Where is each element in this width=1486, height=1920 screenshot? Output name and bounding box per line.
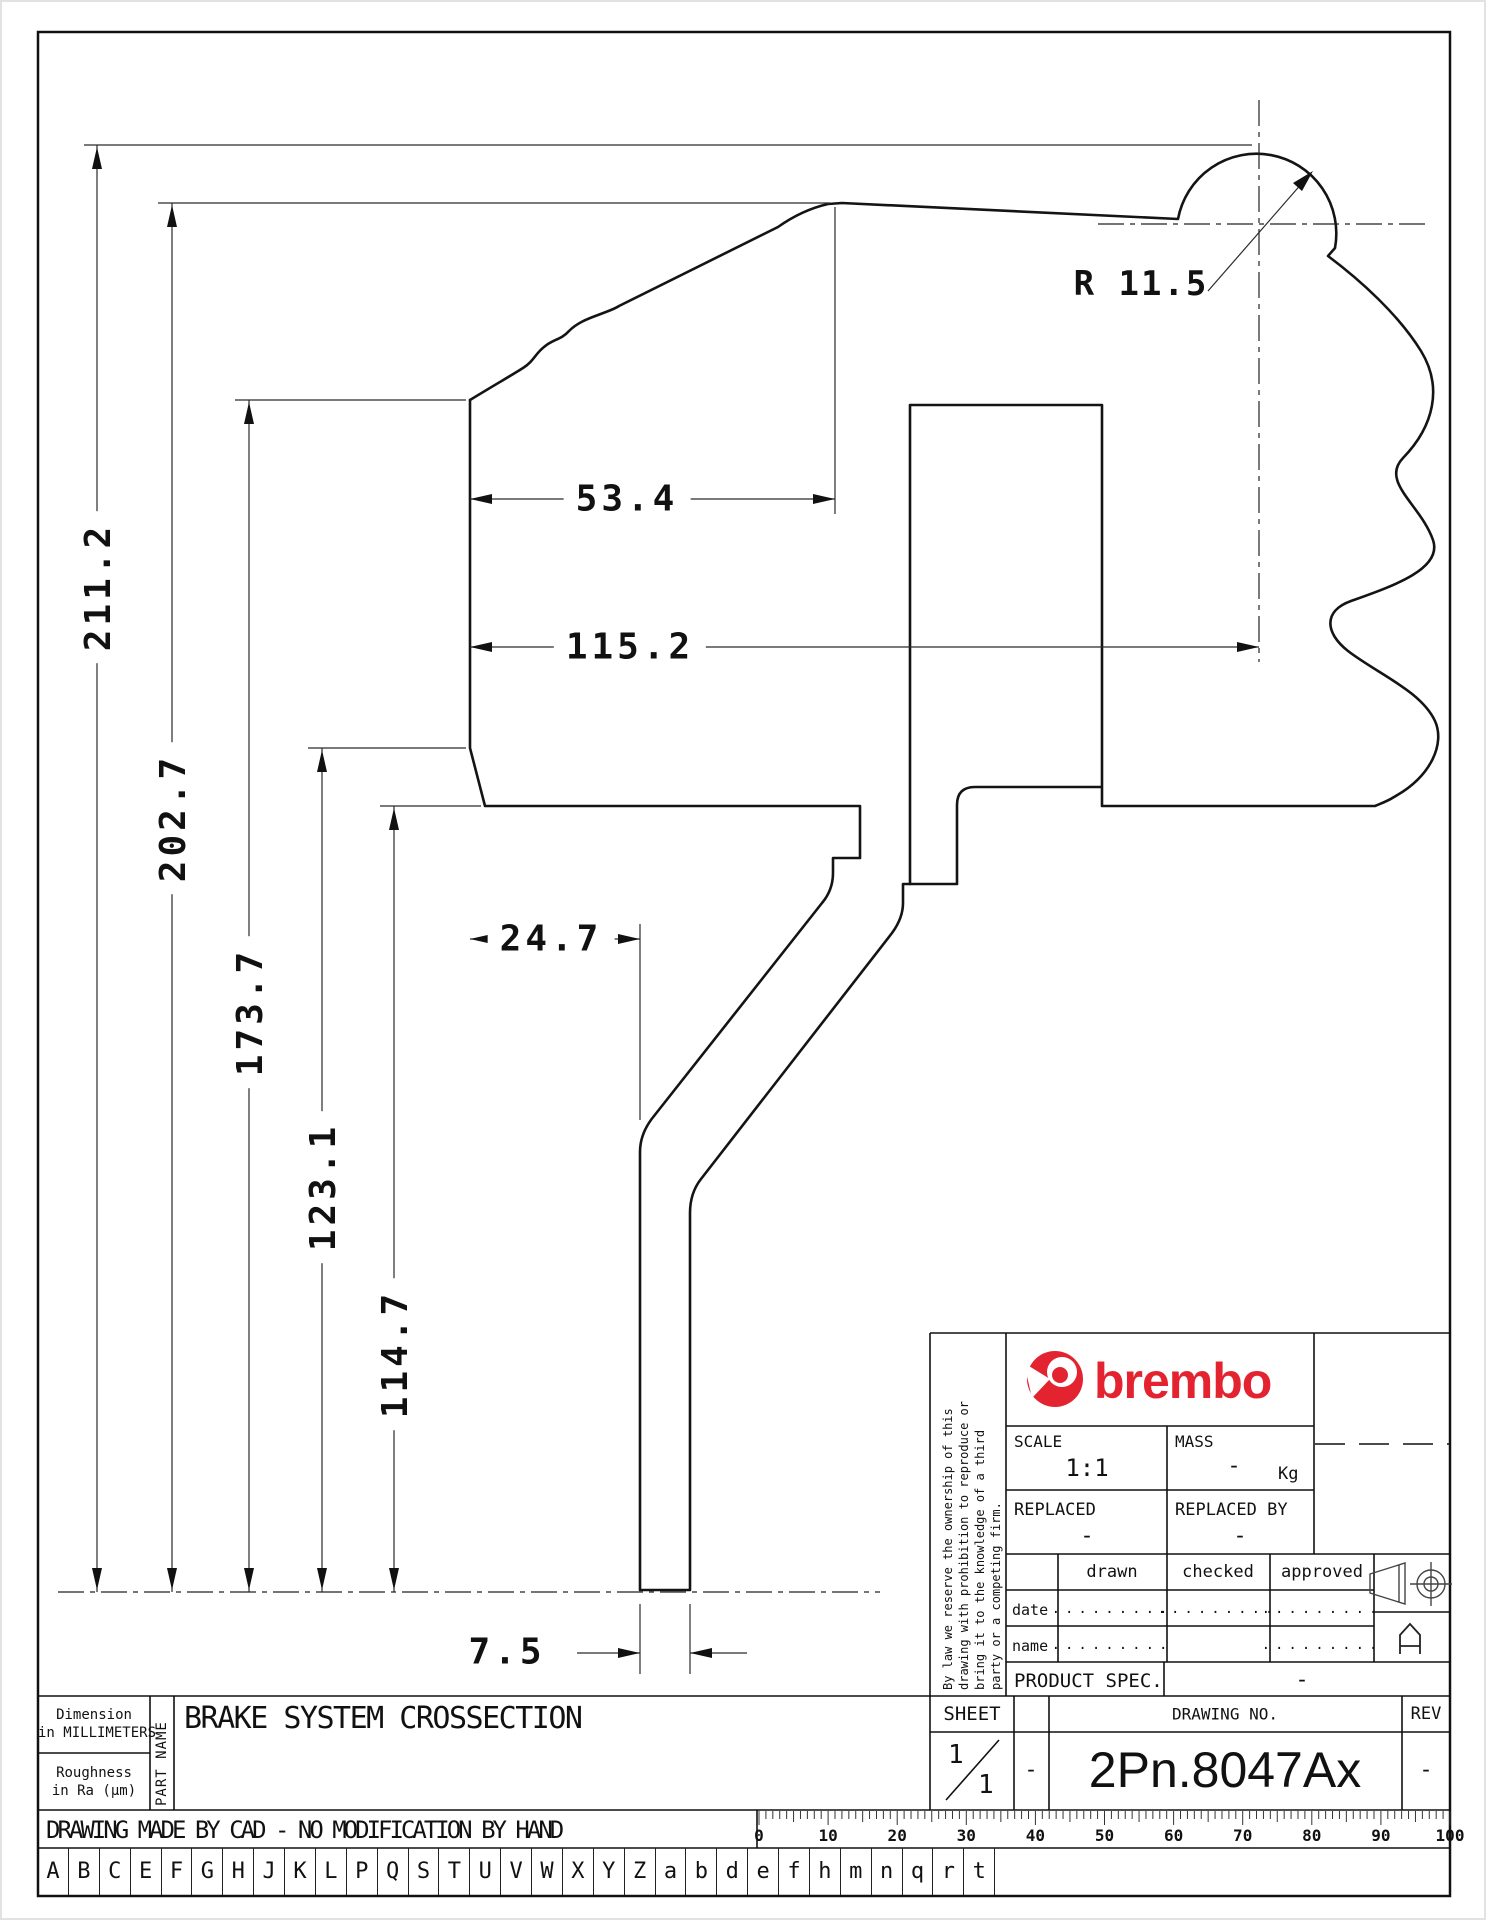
revision-letter-cell: L	[316, 1848, 347, 1895]
scale-value: 1:1	[1065, 1454, 1108, 1482]
dimension-units-note: Dimension in MILLIMETERS	[38, 1706, 150, 1742]
revision-letter-cell: m	[841, 1848, 872, 1895]
mass-value: -	[1227, 1454, 1240, 1479]
date-drawn-dots: .........	[1052, 1601, 1173, 1617]
mass-label: MASS	[1175, 1432, 1214, 1451]
revision-letter-strip: ABCEFGHJKLPQSTUVWXYZabdefhmnqrt	[38, 1848, 995, 1895]
disclaimer-line: party or a competing firm.	[988, 1338, 1004, 1690]
dim-label-173-7: 173.7	[228, 936, 273, 1088]
ruler-number: 40	[1026, 1826, 1045, 1845]
scale-ruler-ticks	[759, 1811, 1450, 1825]
dim-label-114-7: 114.7	[373, 1278, 418, 1430]
approved-label: approved	[1281, 1562, 1363, 1582]
dim-label-115-2: 115.2	[554, 627, 706, 668]
sheet-total: 1	[978, 1770, 994, 1800]
revision-letter-cell: Z	[625, 1848, 656, 1895]
revision-letter-cell: A	[38, 1848, 69, 1895]
revision-letter-cell: P	[347, 1848, 378, 1895]
product-spec-label: PRODUCT SPEC.	[1014, 1670, 1163, 1692]
ruler-number: 20	[888, 1826, 907, 1845]
sheet-number: 1	[948, 1740, 964, 1770]
replaced-label: REPLACED	[1014, 1500, 1096, 1520]
revision-letter-cell: Y	[594, 1848, 625, 1895]
revision-letter-cell: S	[409, 1848, 440, 1895]
revision-letter-cell: C	[100, 1848, 131, 1895]
name-label: name	[1012, 1637, 1048, 1655]
ruler-number: 70	[1233, 1826, 1252, 1845]
dim-label-53-4: 53.4	[564, 479, 691, 520]
revision-letter-cell: b	[686, 1848, 717, 1895]
revision-letter-cell: V	[501, 1848, 532, 1895]
ruler-number: 100	[1436, 1826, 1465, 1845]
brembo-logo-text: brembo	[1094, 1352, 1271, 1410]
revision-letter-cell: T	[439, 1848, 470, 1895]
revision-letter-cell: H	[223, 1848, 254, 1895]
revision-letter-cell: r	[933, 1848, 964, 1895]
revision-letter-cell: e	[748, 1848, 779, 1895]
name-approved-dots: .........	[1262, 1637, 1383, 1653]
revision-letter-cell: f	[779, 1848, 810, 1895]
product-spec-value: -	[1295, 1668, 1308, 1693]
sheet-sep-value: -	[1024, 1758, 1037, 1783]
drawn-label: drawn	[1086, 1562, 1137, 1582]
dim-label-7-5: 7.5	[456, 1632, 557, 1673]
name-drawn-dots: .........	[1052, 1637, 1173, 1653]
scale-ruler-labels: 0102030405060708090100	[759, 1826, 1450, 1844]
view-a-marker-icon	[1400, 1624, 1420, 1654]
revision-letter-cell: W	[532, 1848, 563, 1895]
dim-label-211-2: 211.2	[76, 511, 121, 663]
disclaimer-line: By law we reserve the ownership of this	[940, 1338, 956, 1690]
replaced-by-label: REPLACED BY	[1175, 1500, 1288, 1520]
ownership-disclaimer: By law we reserve the ownership of this …	[940, 1338, 1004, 1690]
roughness-note-line2: in Ra (μm)	[38, 1782, 150, 1800]
revision-letter-cell: U	[470, 1848, 501, 1895]
projection-symbol-icon	[1370, 1562, 1452, 1606]
revision-letter-cell: h	[810, 1848, 841, 1895]
revision-letter-cell: d	[717, 1848, 748, 1895]
replaced-value: -	[1080, 1524, 1093, 1549]
revision-letter-cell: X	[563, 1848, 594, 1895]
dim-label-radius: R 11.5	[1074, 264, 1209, 304]
date-label: date	[1012, 1601, 1048, 1619]
rev-value: -	[1419, 1758, 1432, 1783]
revision-letter-cell: a	[656, 1848, 687, 1895]
revision-letter-cell: K	[285, 1848, 316, 1895]
revision-letter-cell: J	[254, 1848, 285, 1895]
revision-letter-cell: n	[872, 1848, 903, 1895]
revision-letter-cell: E	[131, 1848, 162, 1895]
sheet-label: SHEET	[943, 1703, 1000, 1725]
revision-letter-cell: q	[903, 1848, 934, 1895]
ruler-number: 90	[1371, 1826, 1390, 1845]
brembo-logo-icon	[1024, 1351, 1083, 1407]
ruler-number: 60	[1164, 1826, 1183, 1845]
roughness-note-line1: Roughness	[38, 1764, 150, 1782]
ruler-number: 10	[818, 1826, 837, 1845]
mass-unit: Kg	[1278, 1464, 1298, 1484]
drawing-no-label: DRAWING NO.	[1172, 1705, 1278, 1724]
replaced-by-value: -	[1233, 1524, 1246, 1549]
date-checked-dots: .........	[1158, 1601, 1279, 1617]
ruler-number: 30	[957, 1826, 976, 1845]
part-name-label: PART NAME	[154, 1698, 170, 1806]
dimension-arrows	[92, 147, 1313, 1658]
drawing-number: 2Pn.8047Ax	[1089, 1741, 1361, 1799]
revision-letter-cell: G	[192, 1848, 223, 1895]
drawing-sheet: 211.2 202.7 173.7 123.1 114.7 53.4 115.2…	[0, 0, 1486, 1920]
ruler-number: 50	[1095, 1826, 1114, 1845]
date-approved-dots: .........	[1262, 1601, 1383, 1617]
cad-note: DRAWING MADE BY CAD - NO MODIFICATION BY…	[46, 1816, 561, 1844]
dim-label-202-7: 202.7	[151, 742, 196, 894]
ruler-number: 0	[754, 1826, 764, 1845]
roughness-units-note: Roughness in Ra (μm)	[38, 1764, 150, 1800]
revision-letter-cell: B	[69, 1848, 100, 1895]
dimension-lines	[84, 145, 1310, 1674]
checked-label: checked	[1182, 1562, 1254, 1582]
revision-letter-cell: F	[162, 1848, 193, 1895]
ruler-number: 80	[1302, 1826, 1321, 1845]
disclaimer-line: drawing with prohibition to reproduce or	[956, 1338, 972, 1690]
revision-letter-cell: Q	[378, 1848, 409, 1895]
radius-arrow	[1293, 171, 1313, 191]
dimension-note-line2: in MILLIMETERS	[38, 1724, 150, 1742]
part-name: BRAKE SYSTEM CROSSECTION	[184, 1701, 581, 1736]
rev-label: REV	[1411, 1704, 1442, 1724]
dimension-note-line1: Dimension	[38, 1706, 150, 1724]
scale-label: SCALE	[1014, 1432, 1062, 1451]
dim-label-123-1: 123.1	[301, 1111, 346, 1263]
dim-label-24-7: 24.7	[488, 919, 615, 960]
cad-linework	[2, 2, 1486, 1920]
revision-letter-cell: t	[964, 1848, 995, 1895]
disclaimer-line: bring it to the knowledge of a third	[972, 1338, 988, 1690]
